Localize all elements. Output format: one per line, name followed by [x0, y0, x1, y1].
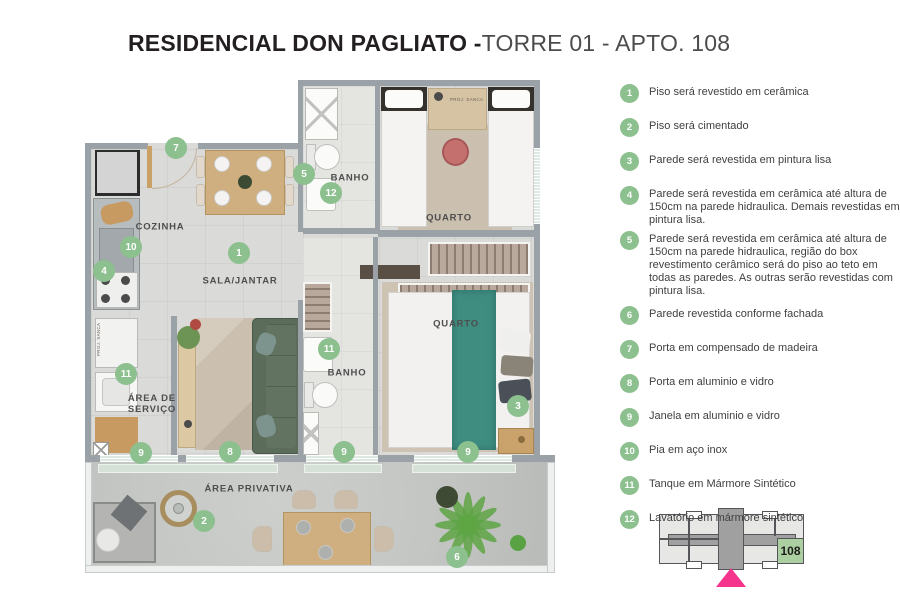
toilet-bath1: [314, 144, 340, 170]
room-label: ÁREA DE SERVIÇO: [128, 393, 176, 415]
room-label: SALA/JANTAR: [202, 276, 277, 287]
finish-marker: 9: [130, 442, 152, 464]
finish-marker: 9: [457, 441, 479, 463]
outdoor-chair: [252, 526, 272, 552]
legend-item: 6 Parede revestida conforme fachada: [620, 308, 900, 325]
desk-chair-pink: [442, 138, 469, 166]
finish-marker: 3: [507, 395, 529, 417]
stove-burner: [121, 276, 130, 285]
entry-door-leaf: [147, 146, 152, 188]
finish-marker: 9: [333, 441, 355, 463]
bed-pillow: [500, 355, 533, 377]
desk-decor: [434, 92, 443, 101]
small-plant-dark: [436, 486, 458, 508]
legend-number-badge: 2: [620, 118, 639, 137]
legend-number-badge: 5: [620, 231, 639, 250]
sideboard-lamp: [184, 420, 192, 428]
proj-sanca-label: PROJ. SANCA: [96, 323, 101, 356]
legend-item: 3 Parede será revestida em pintura lisa: [620, 154, 900, 171]
dining-chair: [285, 184, 294, 206]
legend-item: 5 Parede será revestida em cerâmica até …: [620, 233, 900, 298]
window-sill-3: [412, 464, 516, 473]
outdoor-place-setting: [340, 518, 355, 533]
floorplan-page: RESIDENCIAL DON PAGLIATO -TORRE 01 - APT…: [0, 0, 900, 600]
legend-number-badge: 7: [620, 340, 639, 359]
closet-shelf-dark: [360, 265, 420, 279]
bed-pillow: [499, 328, 532, 354]
stove-burner: [121, 294, 130, 303]
wall-left: [85, 143, 91, 462]
outdoor-place-setting: [296, 520, 311, 535]
wall-bath2-bedroom2: [373, 237, 378, 455]
wall-top-right: [298, 80, 540, 86]
room-label: BANHO: [328, 368, 367, 379]
legend-number-badge: 1: [620, 84, 639, 103]
finish-marker: 2: [193, 510, 215, 532]
bed-teal-throw: [452, 290, 496, 450]
legend-text: Piso será revestido em cerâmica: [649, 86, 900, 99]
legend-text: Parede será revestida em pintura lisa: [649, 154, 900, 167]
legend-item: 9 Janela em aluminio e vidro: [620, 410, 900, 427]
room-label: QUARTO: [426, 213, 472, 224]
wall-bath1-bedroom1: [375, 86, 380, 234]
legend-text: Porta em aluminio e vidro: [649, 376, 900, 389]
legend-text: Porta em compensado de madeira: [649, 342, 900, 355]
legend-number-badge: 6: [620, 306, 639, 325]
window-bedroom1-right: [534, 148, 540, 224]
finish-marker: 8: [219, 441, 241, 463]
wall-right-upper: [534, 86, 540, 148]
legend-item: 10 Pia em aço inox: [620, 444, 900, 461]
legend-text: Janela em aluminio e vidro: [649, 410, 900, 423]
window-sill-2: [304, 464, 382, 473]
legend-number-badge: 9: [620, 408, 639, 427]
legend-item: 7 Porta em compensado de madeira: [620, 342, 900, 359]
shower-bath1: [305, 88, 338, 140]
legend-item: 8 Porta em aluminio e vidro: [620, 376, 900, 393]
finish-marker: 4: [93, 260, 115, 282]
room-label: ÁREA PRIVATIVA: [205, 484, 294, 495]
proj-sanca-label: PROJ. SANCA: [450, 97, 483, 102]
balcony-parapet-left: [85, 462, 92, 572]
side-table-decor: [173, 503, 184, 514]
legend-text: Piso será cimentado: [649, 120, 900, 133]
closet-rack: [428, 242, 530, 276]
wall-right-lower: [534, 224, 540, 462]
legend-item: 11 Tanque em Mármore Sintético: [620, 478, 900, 495]
legend-text: Parede será revestida em cerâmica até al…: [649, 233, 900, 298]
wall-service-living: [171, 316, 177, 455]
legend-number-badge: 4: [620, 186, 639, 205]
dining-chair: [196, 184, 205, 206]
twin-bed-left-pillow: [385, 90, 423, 108]
wall-mid-vertical-lower: [298, 300, 303, 455]
room-label: BANHO: [331, 173, 370, 184]
keyplan-unit-number: 108: [780, 544, 800, 558]
balcony-parapet-right: [547, 462, 555, 573]
place-setting: [256, 190, 272, 206]
place-setting: [214, 156, 230, 172]
dining-chair: [196, 156, 205, 178]
finish-marker: 12: [320, 182, 342, 204]
legend-number-badge: 3: [620, 152, 639, 171]
finish-marker: 5: [293, 163, 315, 185]
legend-number-badge: 12: [620, 510, 639, 529]
wall-bedroom-divider: [378, 230, 534, 237]
washing-machine: [95, 318, 138, 368]
finish-marker: 6: [446, 546, 468, 568]
room-label: COZINHA: [136, 222, 185, 233]
keyplan-notch: [686, 561, 702, 569]
finish-marker: 10: [120, 236, 142, 258]
finish-marker: 11: [115, 363, 137, 385]
legend-text: Lavatório em mármore sintético: [649, 512, 900, 525]
place-setting: [256, 156, 272, 172]
sideboard: [178, 332, 196, 448]
small-plant: [510, 535, 526, 551]
wall-bath1-south: [303, 228, 375, 234]
legend-item: 2 Piso será cimentado: [620, 120, 900, 137]
legend-number-badge: 8: [620, 374, 639, 393]
outdoor-chair: [374, 526, 394, 552]
finishes-legend: 1 Piso será revestido em cerâmica 2 Piso…: [620, 86, 900, 546]
legend-text: Parede será revestida em cerâmica até al…: [649, 188, 900, 227]
location-arrow-icon: [716, 568, 746, 587]
legend-item: 1 Piso será revestido em cerâmica: [620, 86, 900, 103]
legend-item: 12 Lavatório em mármore sintético: [620, 512, 900, 529]
legend-number-badge: 10: [620, 442, 639, 461]
legend-item: 4 Parede será revestida em cerâmica até …: [620, 188, 900, 227]
fridge: [95, 150, 140, 196]
shower-bath2: [303, 412, 319, 455]
window-sill-1: [98, 464, 278, 473]
outdoor-chair: [292, 490, 316, 509]
sideboard-flower: [190, 319, 201, 330]
stove-burner: [101, 294, 110, 303]
outdoor-chair: [334, 490, 358, 509]
legend-text: Pia em aço inox: [649, 444, 900, 457]
wall-mid-vertical-upper: [298, 86, 303, 232]
table-centerpiece-plant: [238, 175, 252, 189]
linen-rack: [303, 282, 332, 332]
toilet-bath2: [312, 382, 338, 408]
finish-marker: 1: [228, 242, 250, 264]
legend-text: Tanque em Mármore Sintético: [649, 478, 900, 491]
keyplan-notch: [762, 561, 778, 569]
nightstand: [498, 428, 534, 454]
twin-bed-right-pillow: [492, 90, 530, 108]
legend-number-badge: 11: [620, 476, 639, 495]
place-setting: [214, 190, 230, 206]
legend-text: Parede revestida conforme fachada: [649, 308, 900, 321]
daybed-pillow-white: [96, 528, 120, 552]
finish-marker: 7: [165, 137, 187, 159]
balcony-parapet-bottom: [85, 565, 555, 573]
nightstand-knob: [518, 436, 525, 443]
finish-marker: 11: [318, 338, 340, 360]
room-label: QUARTO: [433, 319, 479, 330]
outdoor-place-setting: [318, 545, 333, 560]
